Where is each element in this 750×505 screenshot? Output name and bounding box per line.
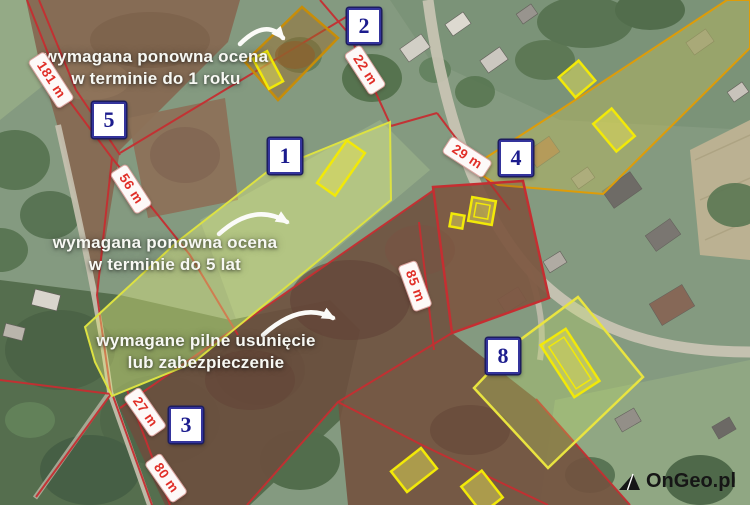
annotation-line: lub zabezpieczenie: [96, 352, 315, 374]
aerial-map: wymagana ponowna ocena w terminie do 1 r…: [0, 0, 750, 505]
annotation-line: wymagana ponowna ocena: [53, 232, 278, 254]
annotation-line: w terminie do 1 roku: [44, 68, 269, 90]
ongeo-logo-text: OnGeo.pl: [646, 470, 736, 493]
parcel-badge-8: 8: [486, 338, 520, 374]
annotation-line: wymagane pilne usunięcie: [96, 330, 315, 352]
annotation-pilne: wymagane pilne usunięcie lub zabezpiecze…: [96, 330, 315, 374]
annotation-5-lat: wymagana ponowna ocena w terminie do 5 l…: [53, 232, 278, 276]
annotation-line: w terminie do 5 lat: [53, 254, 278, 276]
parcel-badge-3: 3: [169, 407, 203, 443]
parcel-badge-1: 1: [268, 138, 302, 174]
parcel-badge-5: 5: [92, 102, 126, 138]
ongeo-triangle-icon: [619, 473, 641, 491]
ongeo-watermark: OnGeo.pl: [619, 470, 736, 493]
parcel-badge-2: 2: [347, 8, 381, 44]
annotation-1-roku: wymagana ponowna ocena w terminie do 1 r…: [44, 46, 269, 90]
parcel-badge-4: 4: [499, 140, 533, 176]
annotation-line: wymagana ponowna ocena: [44, 46, 269, 68]
